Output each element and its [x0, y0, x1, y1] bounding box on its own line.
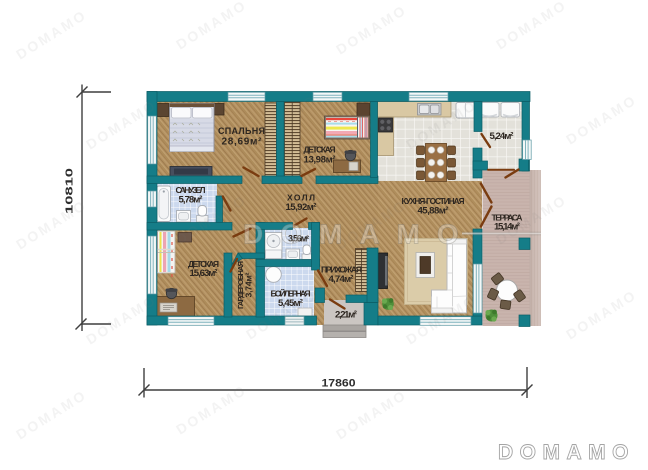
svg-text:ХОЛЛ: ХОЛЛ	[287, 193, 315, 203]
svg-text:2,21м²: 2,21м²	[335, 310, 357, 321]
svg-text:15,92м²: 15,92м²	[286, 202, 317, 213]
svg-text:13,98м²: 13,98м²	[304, 155, 336, 166]
svg-text:4,74м²: 4,74м²	[329, 274, 354, 285]
svg-text:DOMAMO: DOMAMO	[498, 441, 635, 464]
svg-text:45,88м²: 45,88м²	[418, 206, 449, 217]
svg-text:САНУЗЕЛ: САНУЗЕЛ	[176, 185, 206, 195]
svg-text:ДЕТСКАЯ: ДЕТСКАЯ	[304, 145, 336, 155]
svg-text:17860: 17860	[322, 378, 356, 390]
svg-text:3,74м²: 3,74м²	[244, 272, 254, 297]
svg-text:ПРИХОЖАЯ: ПРИХОЖАЯ	[321, 265, 362, 275]
svg-text:DOMAMO: DOMAMO	[243, 219, 476, 250]
svg-text:5,24м²: 5,24м²	[490, 131, 514, 142]
svg-text:15,63м²: 15,63м²	[190, 268, 218, 279]
svg-text:5,78м²: 5,78м²	[179, 195, 203, 206]
